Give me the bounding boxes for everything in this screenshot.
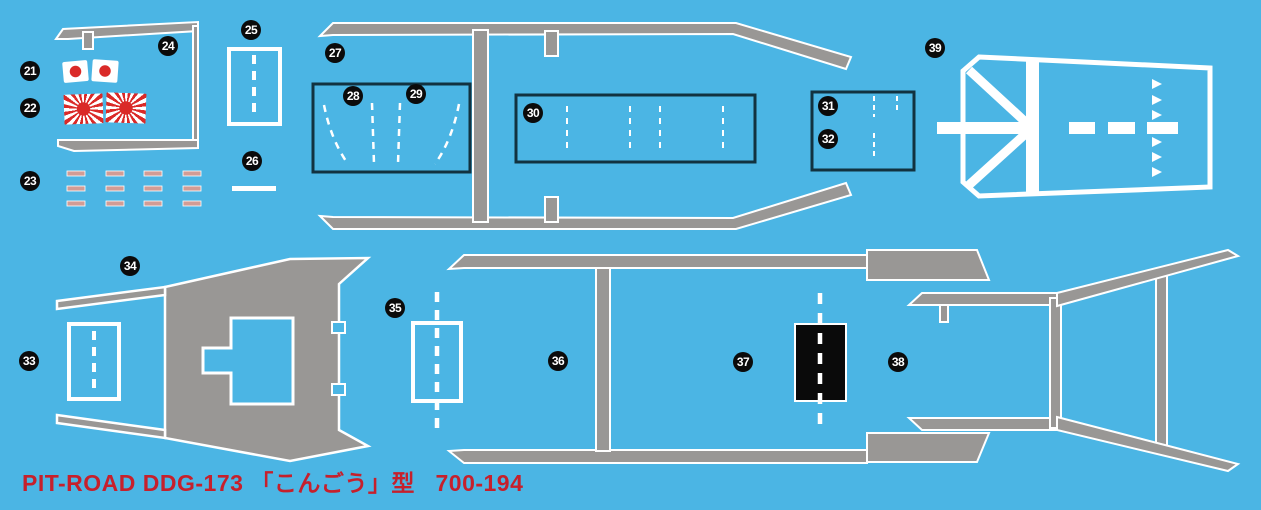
decal-number-badge-28: 28 — [343, 86, 363, 106]
decal-artwork — [0, 0, 1261, 510]
decal-number-badge-33: 33 — [19, 351, 39, 371]
sheet-title: PIT-ROAD DDG-173 「こんごう」型 700-194 — [22, 464, 523, 498]
rising-sun-ensign-icon — [105, 92, 146, 123]
decal-number-badge-26: 26 — [242, 151, 262, 171]
vls-deck-markings-box-icon — [516, 95, 755, 162]
decal-number-badge-35: 35 — [385, 298, 405, 318]
decal-number-badge-31: 31 — [818, 96, 838, 116]
vls-blast-markings-box-icon — [313, 84, 470, 172]
helicopter-deck-markings-icon — [937, 57, 1210, 196]
decal-number-badge-21: 21 — [20, 61, 40, 81]
draft-marks-icon — [67, 171, 201, 206]
midship-walkway-outline-icon — [320, 23, 851, 229]
decal-number-badge-23: 23 — [20, 171, 40, 191]
decal-number-badge-32: 32 — [818, 129, 838, 149]
decal-number-badge-39: 39 — [925, 38, 945, 58]
rising-sun-ensign-icon — [63, 93, 103, 124]
decal-number-badge-38: 38 — [888, 352, 908, 372]
amidships-deck-panel-icon — [413, 292, 461, 431]
deck-panel-25-icon — [229, 49, 280, 124]
decal-number-badge-29: 29 — [406, 84, 426, 104]
decal-sheet: PIT-ROAD DDG-173 「こんごう」型 700-194 2122232… — [0, 0, 1261, 510]
decal-number-badge-27: 27 — [325, 43, 345, 63]
decal-number-badge-36: 36 — [548, 351, 568, 371]
bow-deck-plate-icon — [57, 258, 368, 461]
deck-line-26-icon — [232, 186, 276, 191]
forward-deck-panel-icon — [69, 324, 119, 399]
helipad-black-panel-icon — [795, 293, 846, 431]
decal-number-badge-34: 34 — [120, 256, 140, 276]
hinomaru-flag-icon — [62, 60, 89, 83]
decal-number-badge-24: 24 — [158, 36, 178, 56]
hinomaru-flag-icon — [91, 59, 118, 83]
decal-number-badge-25: 25 — [241, 20, 261, 40]
decal-number-badge-37: 37 — [733, 352, 753, 372]
decal-number-badge-30: 30 — [523, 103, 543, 123]
decal-number-badge-22: 22 — [20, 98, 40, 118]
main-deck-walkways-icon — [449, 250, 989, 463]
